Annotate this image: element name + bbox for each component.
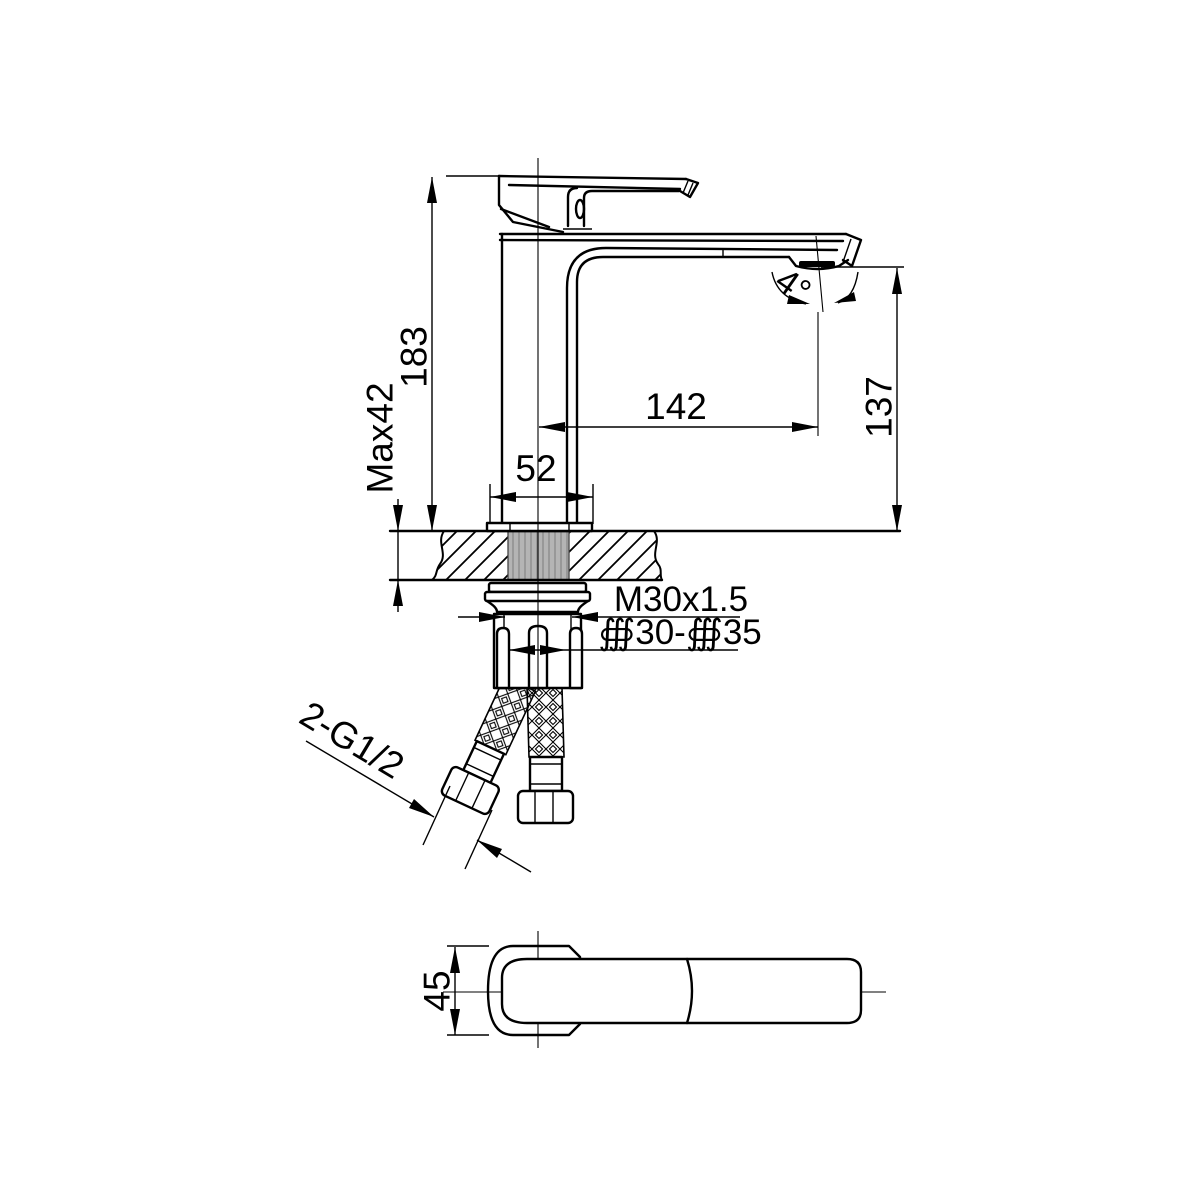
- counter-right-slab: [569, 531, 662, 580]
- faucet-technical-drawing: 183 Max42 142 137 52 4°: [0, 0, 1200, 1200]
- arrowhead: [834, 292, 856, 303]
- handle-top-bar: [499, 176, 686, 179]
- spout-tip-tick: [843, 239, 851, 262]
- dim-142: 142: [539, 386, 818, 432]
- dim-label-hose-thread: 2-G1/2: [293, 693, 411, 786]
- arrowhead-left: [539, 422, 565, 432]
- topview-body-and-handle: [502, 959, 861, 1023]
- dim-label-183: 183: [394, 326, 435, 388]
- arrowhead-right: [792, 422, 818, 432]
- handle-neck-detail: [576, 200, 584, 218]
- arrowhead-up: [427, 177, 437, 203]
- dim-label-hole: ∰30-∰35: [598, 613, 762, 652]
- arrowhead: [477, 840, 502, 858]
- dim-max42: Max42: [360, 382, 404, 612]
- dim-label-max42: Max42: [360, 382, 401, 493]
- base-flange: [487, 523, 592, 531]
- hose-right-ferrule: [530, 757, 562, 791]
- ext-line: [465, 810, 492, 869]
- dim-label-137: 137: [859, 376, 900, 438]
- mounting-stud-right: [570, 628, 582, 688]
- dim-137: 137: [821, 267, 904, 531]
- dim-183: 183: [394, 176, 501, 531]
- dim-label-45: 45: [417, 970, 458, 1011]
- aerator-outlet: [799, 261, 835, 267]
- arrowhead-up: [450, 947, 460, 973]
- hose-right-braid: [527, 688, 564, 757]
- arrowhead-up: [892, 268, 902, 294]
- arrowhead-up: [393, 580, 403, 606]
- arrowhead-down: [892, 505, 902, 531]
- arrowhead-right: [567, 492, 593, 502]
- faucet-top-view: 45: [417, 931, 887, 1048]
- supply-hoses: [440, 673, 573, 823]
- spout-top-chamfer: [500, 240, 843, 241]
- arrowhead-down: [393, 505, 403, 531]
- handle-bar-underside: [509, 185, 680, 189]
- hose-right-hex-nut: [518, 791, 573, 823]
- dim-45: 45: [417, 946, 490, 1035]
- faucet-base-flange: [487, 523, 592, 531]
- dim-label-142: 142: [645, 386, 707, 427]
- faucet-handle: [499, 176, 698, 232]
- arrowhead-down: [427, 505, 437, 531]
- drawing-canvas: 183 Max42 142 137 52 4°: [0, 0, 1200, 1200]
- ext-line: [423, 786, 450, 845]
- mounting-stud-left: [497, 628, 509, 688]
- arrowhead: [409, 799, 434, 817]
- arrowhead-down: [450, 1009, 460, 1035]
- counter-deck: [390, 531, 900, 580]
- dim-label-52: 52: [515, 448, 556, 489]
